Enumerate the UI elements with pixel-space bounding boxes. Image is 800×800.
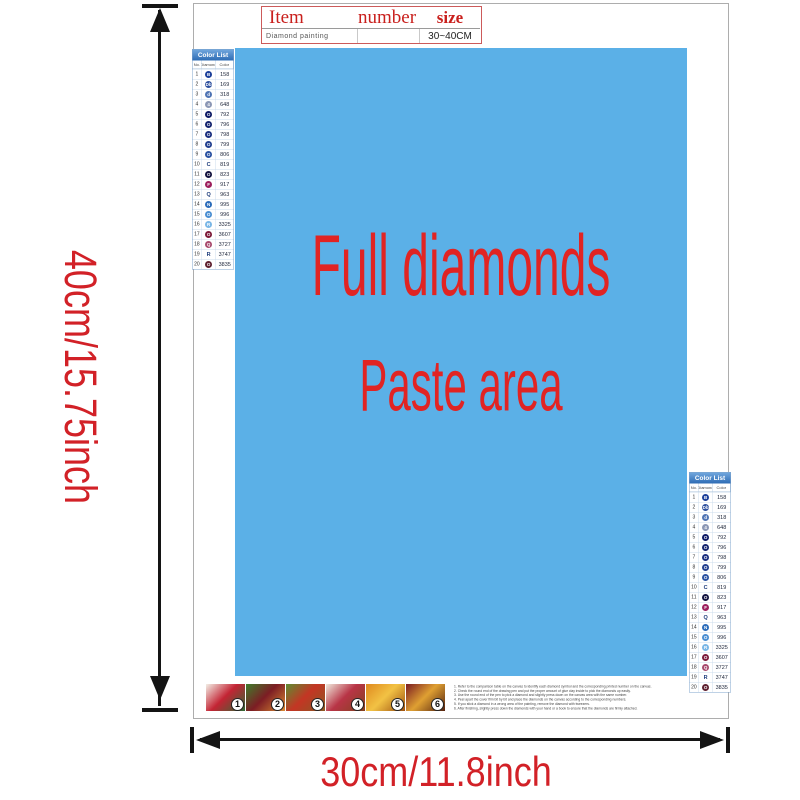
color-list-row-number: 15 xyxy=(690,633,699,643)
diamond-symbol-letter: R xyxy=(207,251,211,257)
color-list-dmc-code: 806 xyxy=(216,150,234,160)
color-list-row: 44648 xyxy=(690,522,731,532)
color-list-symbol-cell: O xyxy=(202,120,216,130)
color-list-row: 44648 xyxy=(193,99,234,109)
color-list-row-number: 11 xyxy=(690,593,699,603)
color-list-symbol-cell: Q xyxy=(202,240,216,250)
color-list-symbol-cell: R xyxy=(699,643,713,653)
color-list-dmc-code: 819 xyxy=(216,160,234,170)
color-list-dmc-code: 806 xyxy=(713,573,731,583)
thumbnail-number-badge: 2 xyxy=(271,698,284,711)
diamond-symbol-icon: O xyxy=(702,634,709,641)
thumbnail-strip: 123456 xyxy=(206,684,445,711)
color-list-row: 10C819 xyxy=(193,159,234,169)
diamond-symbol-icon: O xyxy=(205,111,212,118)
color-list-symbol-cell: R xyxy=(202,220,216,230)
color-list-dmc-code: 3325 xyxy=(216,220,234,230)
color-list-column-label: Diamond xyxy=(202,61,216,69)
color-list-row-number: 17 xyxy=(690,653,699,663)
color-list-row-number: 8 xyxy=(193,140,202,150)
thumbnail-image: 5 xyxy=(366,684,405,711)
color-list-row-number: 6 xyxy=(690,543,699,553)
thumbnail-image: 4 xyxy=(326,684,365,711)
diamond-symbol-icon: N xyxy=(205,201,212,208)
color-list-row: 12F917 xyxy=(193,179,234,189)
color-list-symbol-cell: B xyxy=(699,493,713,503)
color-list-symbol-cell: Q xyxy=(202,190,216,200)
color-list-row-number: 1 xyxy=(690,493,699,503)
color-list-row-number: 8 xyxy=(690,563,699,573)
color-list-right: Color ListNo.DiamondColor1B1582Db1693d31… xyxy=(689,472,731,693)
color-list-symbol-cell: O xyxy=(699,543,713,553)
color-list-dmc-code: 963 xyxy=(713,613,731,623)
color-list-row: 15O996 xyxy=(690,632,731,642)
color-list-row-number: 3 xyxy=(193,90,202,100)
color-list-row-number: 16 xyxy=(193,220,202,230)
color-list-dmc-code: 3727 xyxy=(216,240,234,250)
color-list-row: 14N995 xyxy=(193,199,234,209)
color-list-symbol-cell: C xyxy=(699,583,713,593)
color-list-row: 20O3835 xyxy=(193,259,234,269)
color-list-symbol-cell: F xyxy=(699,603,713,613)
diamond-symbol-icon: Db xyxy=(702,504,709,511)
color-list-row: 16R3325 xyxy=(690,642,731,652)
color-list-symbol-cell: O xyxy=(202,110,216,120)
color-list-row-number: 1 xyxy=(193,70,202,80)
diamond-symbol-icon: O xyxy=(702,534,709,541)
color-list-symbol-cell: O xyxy=(202,130,216,140)
diamond-symbol-icon: F xyxy=(702,604,709,611)
color-list-row: 9O806 xyxy=(690,572,731,582)
color-list-row: 15O996 xyxy=(193,209,234,219)
thumbnail-image: 3 xyxy=(286,684,325,711)
color-list-row-number: 12 xyxy=(690,603,699,613)
diamond-symbol-letter: Q xyxy=(703,614,707,620)
color-list-row-number: 9 xyxy=(193,150,202,160)
instructions-text: 1. Refer to the comparison table on the … xyxy=(454,684,726,714)
color-list-dmc-code: 996 xyxy=(713,633,731,643)
color-list-dmc-code: 823 xyxy=(216,170,234,180)
thumbnail-number-badge: 5 xyxy=(391,698,404,711)
thumbnail-number-badge: 3 xyxy=(311,698,324,711)
color-list-row-number: 7 xyxy=(193,130,202,140)
color-list-symbol-cell: O xyxy=(202,210,216,220)
color-list-row: 5O792 xyxy=(690,532,731,542)
color-list-row: 17O3607 xyxy=(193,229,234,239)
color-list-row-number: 10 xyxy=(690,583,699,593)
color-list-dmc-code: 819 xyxy=(713,583,731,593)
color-list-symbol-cell: O xyxy=(699,633,713,643)
diamond-symbol-icon: Q xyxy=(702,664,709,671)
color-list-symbol-cell: O xyxy=(202,170,216,180)
item-table-value-number xyxy=(358,29,420,43)
color-list-row-number: 2 xyxy=(193,80,202,90)
item-table: Item number size Diamond painting 30~40C… xyxy=(261,6,482,44)
width-arrow-right-head xyxy=(700,731,724,749)
color-list-dmc-code: 996 xyxy=(216,210,234,220)
diamond-symbol-icon: O xyxy=(205,151,212,158)
color-list-symbol-cell: O xyxy=(202,140,216,150)
color-list-row-number: 13 xyxy=(690,613,699,623)
paste-area-subtitle: Paste area xyxy=(235,349,687,423)
color-list-row-number: 11 xyxy=(193,170,202,180)
width-arrow-left-cap xyxy=(190,727,194,753)
color-list-symbol-cell: Db xyxy=(202,80,216,90)
color-list-row-number: 10 xyxy=(193,160,202,170)
color-list-dmc-code: 796 xyxy=(216,120,234,130)
color-list-row: 7O798 xyxy=(690,552,731,562)
diamond-symbol-icon: O xyxy=(205,121,212,128)
color-list-row: 18Q3727 xyxy=(193,239,234,249)
diamond-symbol-icon: N xyxy=(702,624,709,631)
product-diagram: Item number size Diamond painting 30~40C… xyxy=(0,0,800,800)
color-list-row: 3d318 xyxy=(690,512,731,522)
diamond-symbol-icon: d xyxy=(702,514,709,521)
color-list-dmc-code: 318 xyxy=(216,90,234,100)
color-list-row: 9O806 xyxy=(193,149,234,159)
diamond-symbol-letter: C xyxy=(704,584,708,590)
diamond-symbol-icon: O xyxy=(702,654,709,661)
diamond-symbol-icon: B xyxy=(702,494,709,501)
thumbnail-image: 2 xyxy=(246,684,285,711)
color-list-symbol-cell: 4 xyxy=(699,523,713,533)
diamond-symbol-icon: R xyxy=(702,644,709,651)
item-table-header-size: size xyxy=(420,7,480,29)
color-list-dmc-code: 3607 xyxy=(216,230,234,240)
diamond-symbol-icon: O xyxy=(702,594,709,601)
color-list-row-number: 2 xyxy=(690,503,699,513)
color-list-symbol-cell: N xyxy=(202,200,216,210)
color-list-symbol-cell: Db xyxy=(699,503,713,513)
color-list-row-number: 9 xyxy=(690,573,699,583)
color-list-row: 1B158 xyxy=(193,69,234,79)
color-list-row-number: 17 xyxy=(193,230,202,240)
color-list-column-label: Color xyxy=(216,61,234,69)
color-list-symbol-cell: d xyxy=(699,513,713,523)
diamond-symbol-icon: 4 xyxy=(702,524,709,531)
color-list-row-number: 4 xyxy=(193,100,202,110)
height-arrow-down-head xyxy=(150,676,170,700)
color-list-row: 2Db169 xyxy=(690,502,731,512)
color-list-row-number: 5 xyxy=(690,533,699,543)
color-list-symbol-cell: O xyxy=(699,553,713,563)
thumbnail-number-badge: 4 xyxy=(351,698,364,711)
color-list-dmc-code: 792 xyxy=(713,533,731,543)
diamond-symbol-icon: O xyxy=(702,574,709,581)
color-list-row: 11O823 xyxy=(690,592,731,602)
diamond-symbol-icon: O xyxy=(205,141,212,148)
color-list-left: Color ListNo.DiamondColor1B1582Db1693d31… xyxy=(192,49,234,270)
color-list-symbol-cell: O xyxy=(202,260,216,270)
paste-area: Full diamonds Paste area xyxy=(235,48,687,676)
color-list-dmc-code: 648 xyxy=(216,100,234,110)
color-list-dmc-code: 3727 xyxy=(713,663,731,673)
color-list-row: 19R3747 xyxy=(193,249,234,259)
color-list-dmc-code: 158 xyxy=(713,493,731,503)
color-list-dmc-code: 3747 xyxy=(216,250,234,260)
thumbnail-number-badge: 6 xyxy=(431,698,444,711)
color-list-dmc-code: 995 xyxy=(713,623,731,633)
color-list-dmc-code: 792 xyxy=(216,110,234,120)
color-list-dmc-code: 798 xyxy=(216,130,234,140)
color-list-row-number: 20 xyxy=(193,260,202,270)
color-list-symbol-cell: O xyxy=(699,573,713,583)
color-list-row: 10C819 xyxy=(690,582,731,592)
width-dimension-label: 30cm/11.8inch xyxy=(256,747,616,798)
color-list-dmc-code: 158 xyxy=(216,70,234,80)
color-list-row-number: 16 xyxy=(690,643,699,653)
color-list-dmc-code: 318 xyxy=(713,513,731,523)
diamond-symbol-icon: O xyxy=(702,554,709,561)
color-list-title: Color List xyxy=(690,473,731,484)
color-list-row: 8O799 xyxy=(690,562,731,572)
diamond-symbol-icon: Q xyxy=(205,241,212,248)
color-list-row: 14N995 xyxy=(690,622,731,632)
color-list-row: 5O792 xyxy=(193,109,234,119)
color-list-dmc-code: 3325 xyxy=(713,643,731,653)
color-list-row: 19R3747 xyxy=(690,672,731,682)
color-list-symbol-cell: N xyxy=(699,623,713,633)
diamond-symbol-letter: R xyxy=(704,674,708,680)
color-list-symbol-cell: O xyxy=(699,593,713,603)
thumbnail-image: 1 xyxy=(206,684,245,711)
item-table-value-size: 30~40CM xyxy=(420,29,480,43)
item-table-header-number: number xyxy=(358,7,420,29)
diamond-symbol-icon: B xyxy=(205,71,212,78)
color-list-symbol-cell: C xyxy=(202,160,216,170)
color-list-row-number: 13 xyxy=(193,190,202,200)
thumbnail-image: 6 xyxy=(406,684,445,711)
color-list-dmc-code: 3607 xyxy=(713,653,731,663)
color-list-dmc-code: 3835 xyxy=(216,260,234,270)
diamond-symbol-icon: O xyxy=(205,171,212,178)
color-list-symbol-cell: O xyxy=(699,653,713,663)
color-list-row: 17O3607 xyxy=(690,652,731,662)
color-list-column-label: No. xyxy=(193,61,202,69)
color-list-dmc-code: 917 xyxy=(216,180,234,190)
color-list-symbol-cell: R xyxy=(202,250,216,260)
color-list-column-label: Color xyxy=(713,484,731,492)
color-list-row-number: 7 xyxy=(690,553,699,563)
color-list-row: 7O798 xyxy=(193,129,234,139)
color-list-row: 18Q3727 xyxy=(690,662,731,672)
height-arrow-line xyxy=(158,10,161,706)
color-list-symbol-cell: O xyxy=(699,563,713,573)
diamond-symbol-icon: R xyxy=(205,221,212,228)
diamond-symbol-icon: F xyxy=(205,181,212,188)
color-list-dmc-code: 3747 xyxy=(713,673,731,683)
color-list-dmc-code: 799 xyxy=(216,140,234,150)
color-list-row: 3d318 xyxy=(193,89,234,99)
color-list-row: 6O796 xyxy=(193,119,234,129)
color-list-row-number: 19 xyxy=(690,673,699,683)
color-list-dmc-code: 648 xyxy=(713,523,731,533)
color-list-symbol-cell: Q xyxy=(699,613,713,623)
color-list-row: 8O799 xyxy=(193,139,234,149)
color-list-symbol-cell: O xyxy=(699,533,713,543)
color-list-dmc-code: 798 xyxy=(713,553,731,563)
diamond-symbol-icon: O xyxy=(702,544,709,551)
color-list-row-number: 14 xyxy=(193,200,202,210)
color-list-title: Color List xyxy=(193,50,234,61)
color-list-row-number: 15 xyxy=(193,210,202,220)
color-list-dmc-code: 917 xyxy=(713,603,731,613)
instruction-line: 6. After finishing, slightly press down … xyxy=(454,706,726,710)
diamond-symbol-icon: d xyxy=(205,91,212,98)
color-list-row-number: 12 xyxy=(193,180,202,190)
diamond-symbol-icon: O xyxy=(205,261,212,268)
color-list-symbol-cell: O xyxy=(202,150,216,160)
color-list-row-number: 5 xyxy=(193,110,202,120)
diamond-symbol-icon: O xyxy=(702,564,709,571)
diamond-symbol-letter: Q xyxy=(206,191,210,197)
color-list-dmc-code: 169 xyxy=(713,503,731,513)
item-table-value-item: Diamond painting xyxy=(262,29,358,43)
color-list-row: 2Db169 xyxy=(193,79,234,89)
color-list-row: 11O823 xyxy=(193,169,234,179)
width-arrow-right-cap xyxy=(726,727,730,753)
item-table-header-item: Item xyxy=(262,7,358,29)
color-list-dmc-code: 823 xyxy=(713,593,731,603)
color-list-dmc-code: 799 xyxy=(713,563,731,573)
paste-area-title: Full diamonds xyxy=(235,225,687,311)
diamond-symbol-icon: O xyxy=(205,231,212,238)
color-list-row: 13Q963 xyxy=(193,189,234,199)
color-list-row-number: 19 xyxy=(193,250,202,260)
diamond-symbol-icon: Db xyxy=(205,81,212,88)
color-list-column-label: No. xyxy=(690,484,699,492)
color-list-row: 1B158 xyxy=(690,492,731,502)
diamond-symbol-icon: 4 xyxy=(205,101,212,108)
diamond-symbol-icon: O xyxy=(205,131,212,138)
instructions-lines: 1. Refer to the comparison table on the … xyxy=(454,684,726,711)
color-list-symbol-cell: Q xyxy=(699,663,713,673)
color-list-symbol-cell: B xyxy=(202,70,216,80)
color-list-symbol-cell: 4 xyxy=(202,100,216,110)
color-list-dmc-code: 995 xyxy=(216,200,234,210)
color-list-row-number: 14 xyxy=(690,623,699,633)
color-list-row-number: 18 xyxy=(193,240,202,250)
thumbnail-number-badge: 1 xyxy=(231,698,244,711)
height-dimension-label: 40cm/15.75inch xyxy=(48,217,113,537)
diamond-symbol-letter: C xyxy=(207,161,211,167)
color-list-row: 16R3325 xyxy=(193,219,234,229)
color-list-column-label: Diamond xyxy=(699,484,713,492)
color-list-column-headers: No.DiamondColor xyxy=(193,61,234,70)
color-list-column-headers: No.DiamondColor xyxy=(690,484,731,493)
color-list-row: 12F917 xyxy=(690,602,731,612)
color-list-dmc-code: 796 xyxy=(713,543,731,553)
color-list-dmc-code: 169 xyxy=(216,80,234,90)
color-list-symbol-cell: O xyxy=(202,230,216,240)
color-list-dmc-code: 963 xyxy=(216,190,234,200)
color-list-row-number: 18 xyxy=(690,663,699,673)
color-list-symbol-cell: d xyxy=(202,90,216,100)
color-list-row: 13Q963 xyxy=(690,612,731,622)
color-list-row-number: 3 xyxy=(690,513,699,523)
color-list-symbol-cell: F xyxy=(202,180,216,190)
diamond-symbol-icon: O xyxy=(205,211,212,218)
color-list-row: 6O796 xyxy=(690,542,731,552)
color-list-symbol-cell: R xyxy=(699,673,713,683)
width-arrow-line xyxy=(200,738,720,741)
color-list-row-number: 4 xyxy=(690,523,699,533)
height-arrow-bottom-cap xyxy=(142,708,178,712)
color-list-row-number: 6 xyxy=(193,120,202,130)
